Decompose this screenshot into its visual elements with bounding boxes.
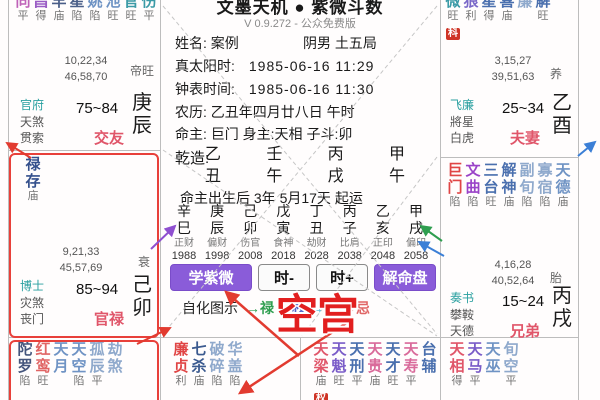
palace-zi[interactable]: 天梁庙权天魁旺天刑平天贵庙天才旺天寿平台辅	[300, 337, 440, 400]
palace-siblings[interactable]: 巨门陷文曲陷三台旺解神庙副旬陷寡宿陷天德庙 4,16,2840,52,64 胎 …	[440, 157, 578, 337]
solar-time-row: 真太阳时:1985-06-16 11:29	[175, 56, 374, 76]
decode-chart-button[interactable]: 解命盘	[374, 264, 436, 291]
gods-list: 博士灾煞丧门	[20, 278, 44, 328]
lunar-date-row: 农历: 乙丑年四月廿八日 午时	[175, 102, 355, 122]
star-天马: 天马平	[466, 341, 484, 388]
star-天才: 天才旺	[384, 341, 402, 388]
star-廉贞: 廉贞利	[172, 341, 190, 388]
star-劫煞: 劫煞	[106, 341, 124, 388]
star-旬空: 旬空平	[502, 341, 520, 388]
star-文昌: 文昌得	[32, 0, 50, 23]
empty-palace-annotation: 空宫	[276, 281, 358, 342]
palace-name: 交友	[94, 127, 124, 148]
learn-ziwei-button[interactable]: 学紫微	[170, 264, 252, 291]
decade-column[interactable]: 乙亥正印2048	[367, 203, 399, 263]
star-天贵: 天贵庙	[366, 341, 384, 388]
decade-column[interactable]: 丙子比肩2038	[334, 203, 366, 263]
decade-column[interactable]: 庚辰偏财1998	[201, 203, 233, 263]
decade-column[interactable]: 甲戌偏印2058	[400, 203, 432, 263]
app-version: V 0.9.272 - 公众免费版	[160, 15, 440, 31]
palace-name: 官禄	[94, 308, 124, 329]
palace-career[interactable]: 禄存庙 9,21,3345,57,69 衰 博士灾煞丧门 85~94 官禄 己卯	[8, 150, 160, 337]
age-numbers: 4,16,2840,52,64	[470, 257, 556, 289]
palace-yin[interactable]: 陀罗陷红鸾旺天月 天空陷孤辰平劫煞	[8, 337, 160, 400]
pillar: 乙丑	[205, 144, 221, 188]
star-咸池: 咸池旺	[104, 0, 122, 23]
decade-luck-table[interactable]: 辛巳正财1988庚辰偏财1998己卯伤官2008戊寅食神2018丁丑劫财2028…	[168, 203, 432, 263]
stem-branch: 庚辰	[132, 92, 152, 138]
star-天空: 天空陷	[70, 341, 88, 388]
decade-column[interactable]: 辛巳正财1988	[168, 203, 200, 263]
palace-chou[interactable]: 廉贞利七杀庙破碎陷华盖陷	[160, 337, 300, 400]
star-list: 天相得天马平天巫 旬空平	[448, 341, 520, 388]
star-天月: 天月	[52, 341, 70, 388]
stem-branch: 乙酉	[552, 92, 572, 138]
life-stage: 帝旺	[130, 62, 154, 79]
star-文曲: 文曲陷	[464, 162, 482, 209]
star-孤辰: 孤辰平	[88, 341, 106, 388]
star-list: 禄存庙	[24, 156, 44, 203]
star-list: 天梁庙权天魁旺天刑平天贵庙天才旺天寿平台辅	[312, 341, 438, 400]
star-擎羊: 擎羊庙	[50, 0, 68, 23]
palace-friends[interactable]: 天同平文昌得擎羊庙火星陷天姚陷咸池旺天官旺天伤平 10,22,3446,58,7…	[8, 0, 160, 150]
star-华盖: 华盖陷	[226, 341, 244, 388]
decade-column[interactable]: 己卯伤官2008	[234, 203, 266, 263]
star-天巫: 天巫	[484, 341, 502, 388]
star-禄存: 禄存庙	[24, 156, 42, 203]
pillar: 丙戌	[328, 144, 344, 188]
star-解神: 解神庙	[500, 162, 518, 209]
age-numbers: 9,21,3345,57,69	[38, 244, 124, 276]
palace-name: 夫妻	[510, 127, 540, 148]
star-天魁: 天魁旺	[330, 341, 348, 388]
decade-column[interactable]: 戊寅食神2018	[267, 203, 299, 263]
star-火星: 火星陷	[68, 0, 86, 23]
clock-time-row: 钟表时间:1985-06-16 11:30	[175, 79, 374, 99]
star-寡宿: 寡宿陷	[536, 162, 554, 209]
four-pillars: 乙丑壬午丙戌甲午	[205, 144, 405, 188]
masters-row: 命主: 巨门 身主:天相 子斗:卯	[175, 124, 352, 144]
pillar: 壬午	[266, 144, 282, 188]
age-numbers: 3,15,2739,51,63	[470, 53, 556, 85]
age-numbers: 10,22,3446,58,70	[43, 53, 129, 85]
ziwei-chart-app: 天同平文昌得擎羊庙火星陷天姚陷咸池旺天官旺天伤平 10,22,3446,58,7…	[0, 0, 600, 400]
star-三台: 三台旺	[482, 162, 500, 209]
life-stage: 养	[550, 65, 562, 82]
palace-hai[interactable]: 天相得天马平天巫 旬空平	[440, 337, 578, 400]
stem-branch: 丙戌	[552, 285, 572, 331]
star-天喜: 天喜庙	[498, 0, 516, 23]
star-list: 巨门陷文曲陷三台旺解神庙副旬陷寡宿陷天德庙	[446, 162, 572, 209]
star-七杀: 七杀庙	[190, 341, 208, 388]
star-天梁: 天梁庙权	[312, 341, 330, 400]
star-天德: 天德庙	[554, 162, 572, 209]
gods-list: 飞廉將星白虎	[450, 97, 474, 147]
star-天伤: 天伤平	[140, 0, 158, 23]
star-天官: 天官旺	[122, 0, 140, 23]
star-list: 紫微旺科贪狼利铃星得天喜庙蜚廉 年解旺	[444, 0, 552, 41]
star-蜚廉: 蜚廉	[516, 0, 534, 23]
palace-name: 兄弟	[510, 320, 540, 341]
star-铃星: 铃星得	[480, 0, 498, 23]
age-range: 85~94	[76, 281, 118, 298]
decade-column[interactable]: 丁丑劫财2028	[301, 203, 333, 263]
star-巨门: 巨门陷	[446, 162, 464, 209]
star-天姚: 天姚陷	[86, 0, 104, 23]
blue-arrow-top-right	[578, 142, 595, 156]
grid-right-border	[578, 0, 579, 400]
age-range: 75~84	[76, 100, 118, 117]
star-台辅: 台辅	[420, 341, 438, 388]
gods-list: 奏书攀鞍天德	[450, 290, 474, 340]
pillar: 甲午	[389, 144, 405, 188]
sihua-badge-权: 权	[314, 393, 328, 400]
star-副旬: 副旬陷	[518, 162, 536, 209]
star-破碎: 破碎陷	[208, 341, 226, 388]
gods-list: 官府天煞贯索	[20, 97, 44, 147]
star-红鸾: 红鸾旺	[34, 341, 52, 388]
name-row: 姓名: 案例 阴男 土五局	[175, 33, 239, 53]
life-stage: 衰	[138, 253, 150, 270]
star-list: 陀罗陷红鸾旺天月 天空陷孤辰平劫煞	[16, 341, 124, 388]
life-stage: 胎	[550, 269, 562, 286]
star-陀罗: 陀罗陷	[16, 341, 34, 388]
star-天寿: 天寿平	[402, 341, 420, 388]
star-天刑: 天刑平	[348, 341, 366, 388]
sihua-legend-item: →禄	[246, 300, 274, 316]
star-天相: 天相得	[448, 341, 466, 388]
age-range: 15~24	[502, 293, 544, 310]
sihua-badge-科: 科	[446, 28, 460, 40]
star-紫微: 紫微旺科	[444, 0, 462, 41]
star-list: 天同平文昌得擎羊庙火星陷天姚陷咸池旺天官旺天伤平	[14, 0, 158, 23]
star-list: 廉贞利七杀庙破碎陷华盖陷	[172, 341, 244, 388]
stem-branch: 己卯	[132, 274, 152, 320]
palace-spouse[interactable]: 紫微旺科贪狼利铃星得天喜庙蜚廉 年解旺 3,15,2739,51,63 养 飞廉…	[440, 0, 578, 157]
star-年解: 年解旺	[534, 0, 552, 23]
star-贪狼: 贪狼利	[462, 0, 480, 23]
age-range: 25~34	[502, 100, 544, 117]
star-天同: 天同平	[14, 0, 32, 23]
